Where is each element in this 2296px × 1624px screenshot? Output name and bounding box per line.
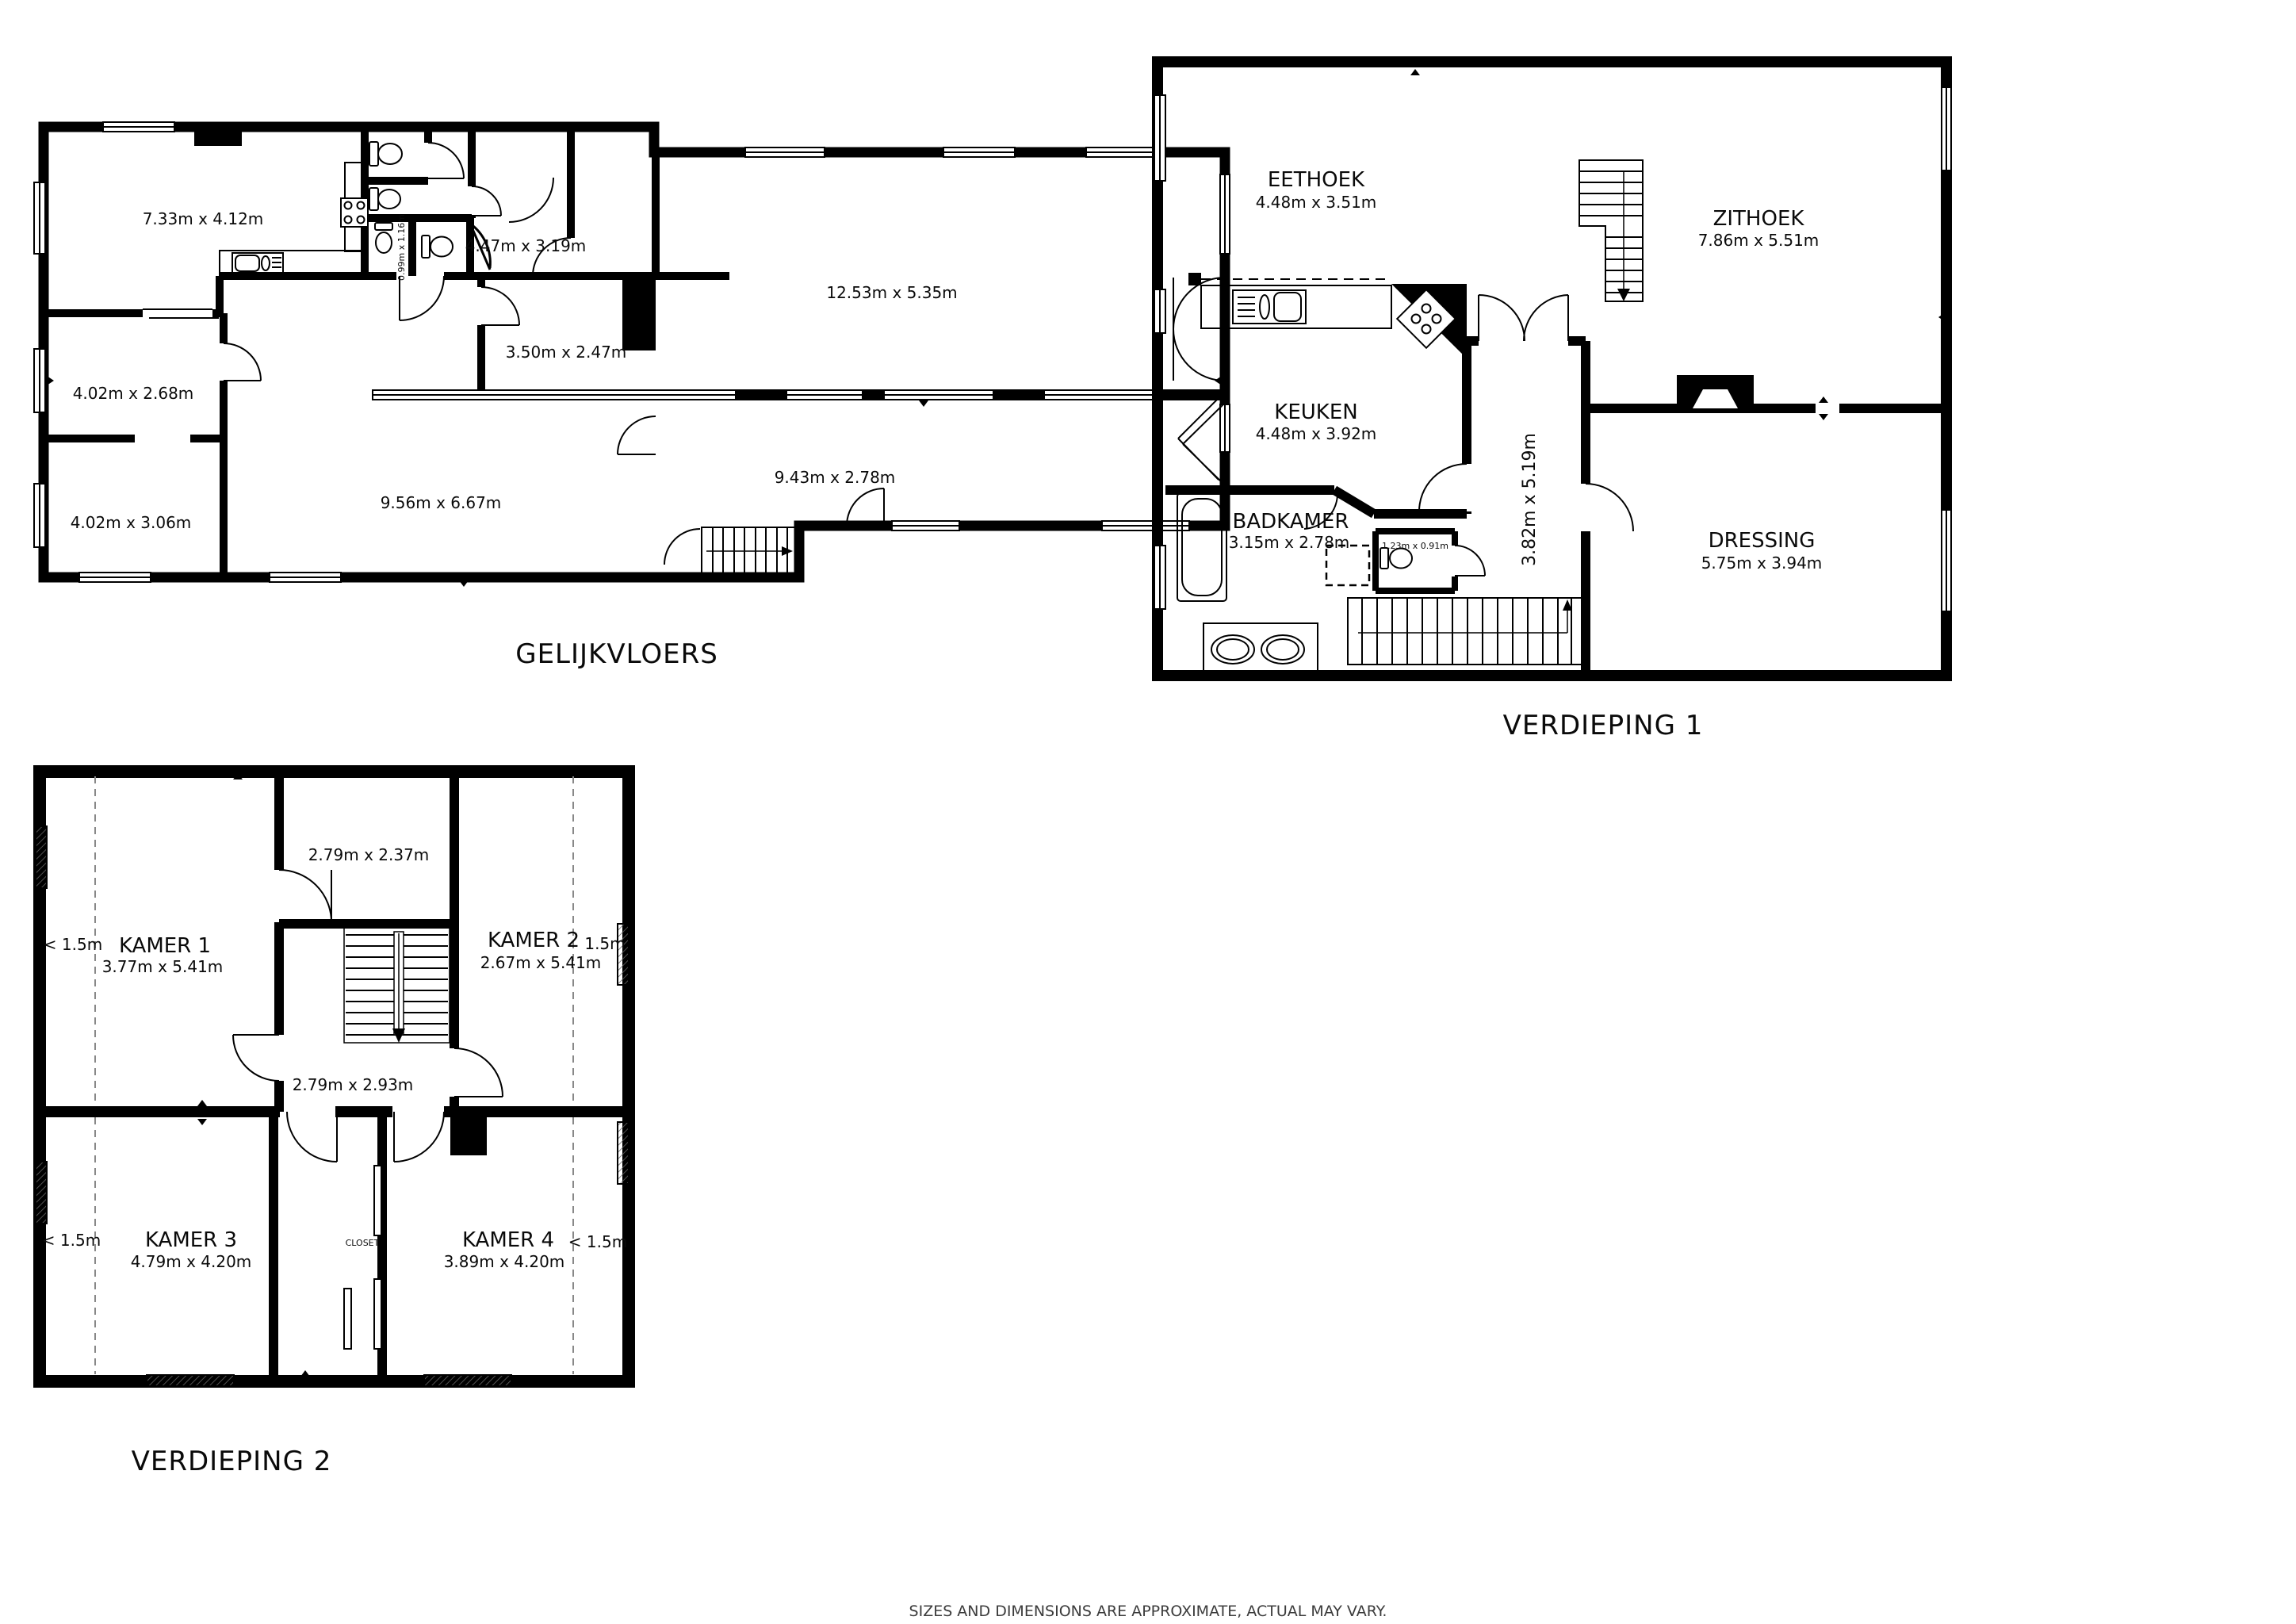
height-marker-kamer4: < 1.5m [568,1232,627,1251]
room-name-kamer4: KAMER 4 [462,1228,554,1252]
room-label-top-room: 2.79m x 2.37m [308,845,430,864]
room-label-hall: 2.79m x 2.93m [293,1075,414,1094]
double-sink-icon [1203,623,1318,676]
height-marker-kamer3: < 1.5m [42,1231,101,1250]
toilet-icon [422,236,453,258]
title-verdieping-2: VERDIEPING 2 [132,1446,332,1477]
floorplan-verdieping-2: KAMER 1 3.77m x 5.41m < 1.5m 2.79m x 2.3… [36,765,638,1392]
room-label-great-room: 12.53m x 5.35m [826,283,957,302]
toilet-icon [369,142,402,166]
title-gelijkvloers: GELIJKVLOERS [515,638,718,670]
room-label-living: 9.56m x 6.67m [381,493,502,512]
room-label-zithoek: 7.86m x 5.51m [1698,231,1820,250]
room-name-kamer3: KAMER 3 [145,1228,237,1252]
room-label-hall: 4.47m x 3.19m [465,236,587,255]
kitchen-counter [1201,285,1391,328]
room-label-kamer3: 4.79m x 4.20m [131,1252,252,1271]
room-name-eethoek: EETHOEK [1268,168,1365,192]
room-name-keuken: KEUKEN [1274,400,1357,424]
toilet-icon [375,223,392,253]
room-label-wc-small: 0.99m x 1.16m [396,214,407,281]
stairs-icon [702,527,798,576]
room-name-closet: CLOSET [346,1238,380,1248]
room-label-kamer2: 2.67m x 5.41m [480,953,602,972]
windows [34,122,1230,582]
room-name-zithoek: ZITHOEK [1713,207,1805,231]
room-label-kitchen-dining: 7.33m x 4.12m [143,209,264,228]
toilet-icon [369,188,400,210]
disclaimer-text: SIZES AND DIMENSIONS ARE APPROXIMATE, AC… [909,1603,1387,1620]
floorplan-verdieping-1: EETHOEK 4.48m x 3.51m ZITHOEK 7.86m x 5.… [1154,56,1962,690]
room-name-badkamer: BADKAMER [1233,510,1349,534]
sliding-door [143,309,219,318]
room-label-hal: 3.82m x 5.19m [1520,433,1540,566]
room-label-wc: 1.23m x 0.91m [1382,541,1448,551]
floorplan-gelijkvloers: 7.33m x 4.12m 0.99m x 1.16m 4.47m x 3.19… [32,119,1237,595]
room-label-eethoek: 4.48m x 3.51m [1256,193,1377,212]
kitchen-sink-icon [232,253,283,274]
room-name-dressing: DRESSING [1709,529,1816,553]
bathtub-icon [1177,493,1226,601]
stove-icon [341,198,368,227]
room-label-badkamer: 3.15m x 2.78m [1229,533,1350,552]
stairs-icon [1579,160,1643,301]
room-label-front-room-2: 4.02m x 3.06m [71,513,192,532]
room-label-kamer1: 3.77m x 5.41m [102,957,224,976]
stairs-icon [344,927,450,1043]
room-label-keuken: 4.48m x 3.92m [1256,424,1377,443]
room-name-kamer1: KAMER 1 [119,934,211,958]
kitchen-sink-icon [1233,290,1306,324]
room-label-kamer4: 3.89m x 4.20m [444,1252,565,1271]
room-label-storage: 3.50m x 2.47m [506,343,627,362]
stairs-icon [1348,598,1586,665]
room-label-front-room-1: 4.02m x 2.68m [73,384,194,403]
interior-walls [1165,273,1946,676]
title-verdieping-1: VERDIEPING 1 [1503,710,1704,741]
tick-marks [1410,69,1946,420]
height-marker-kamer2: 1.5m [584,934,625,953]
closet-doors [344,1166,381,1349]
height-marker-kamer1: < 1.5m [44,935,102,954]
floorplan-page: 7.33m x 4.12m 0.99m x 1.16m 4.47m x 3.19… [0,0,2296,1624]
room-name-kamer2: KAMER 2 [488,929,580,952]
outer-walls [1158,62,1946,676]
room-label-dressing: 5.75m x 3.94m [1701,553,1823,573]
room-label-corridor: 9.43m x 2.78m [775,468,896,487]
